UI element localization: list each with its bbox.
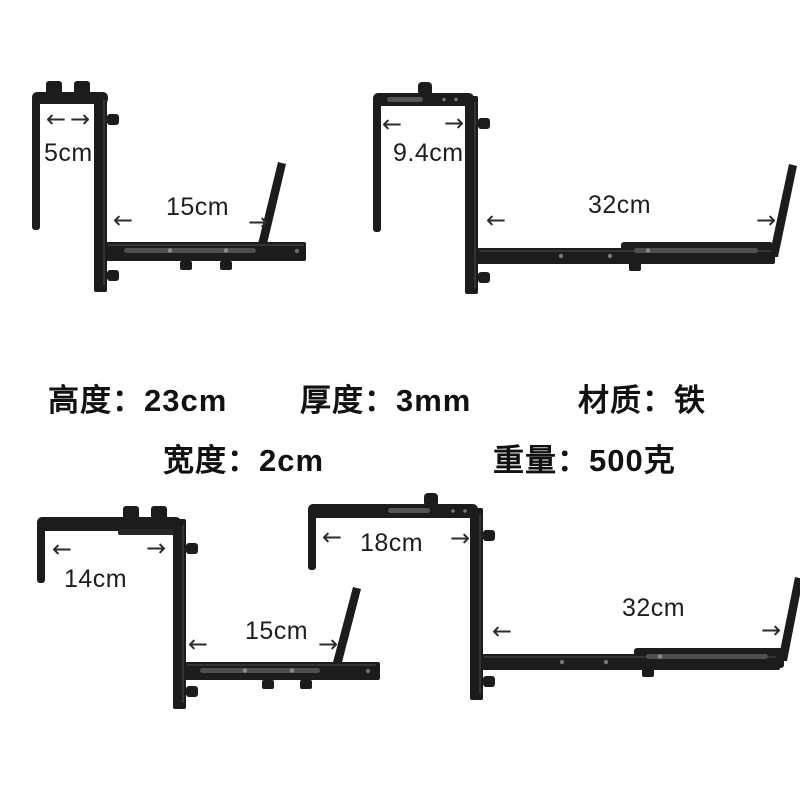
hook-left-leg — [32, 98, 40, 230]
arm-nub-icon — [262, 680, 274, 689]
screw-hole-icon — [604, 660, 608, 664]
bolt-icon — [424, 493, 438, 507]
clamp-knob-icon — [478, 272, 490, 283]
screw-icon — [168, 248, 172, 252]
clamp-knob-icon — [107, 114, 119, 125]
screw-hole-icon — [560, 660, 564, 664]
spec-material: 材质：铁 — [578, 383, 706, 419]
bracket-top-right-illustration — [365, 78, 800, 303]
spec-height: 高度：23cm — [48, 383, 227, 419]
arm-length-label: 15cm — [166, 194, 229, 222]
screw-icon — [243, 668, 247, 672]
spec-thickness: 厚度：3mm — [300, 383, 471, 419]
screw-icon — [451, 509, 455, 513]
mount-post — [465, 96, 478, 294]
bolt-icon — [418, 82, 432, 96]
arm-slot — [646, 654, 768, 659]
clamp-knob-icon — [186, 686, 198, 697]
hook-width-label: 18cm — [360, 530, 423, 558]
arm-nub-icon — [180, 261, 192, 270]
clamp-knob-icon — [186, 543, 198, 554]
mount-post — [173, 519, 186, 709]
arrow-left-icon: ← — [113, 208, 133, 232]
product-spec-image: ← → 5cm ← 15cm → ← → 9.4cm ← 32cm → 高 — [0, 0, 800, 800]
mount-post — [94, 94, 107, 292]
arm-length-label: 32cm — [622, 595, 685, 623]
arrow-right-icon: → — [444, 111, 464, 135]
arrow-left-icon: ← — [52, 537, 72, 561]
arrow-right-icon: → — [70, 107, 90, 131]
arrow-left-icon: ← — [322, 525, 342, 549]
arrow-left-icon: ← — [46, 107, 66, 131]
clamp-knob-icon — [478, 118, 490, 129]
screw-icon — [658, 654, 662, 658]
screw-icon — [646, 248, 650, 252]
arrow-right-icon: → — [756, 208, 776, 232]
bracket-bottom-right-illustration — [300, 488, 800, 708]
hook-left-leg — [308, 512, 316, 570]
hook-left-leg — [373, 100, 381, 232]
spec-weight: 重量：500克 — [493, 443, 676, 479]
clamp-knob-icon — [107, 270, 119, 281]
hook-left-leg — [37, 523, 45, 583]
arm-slot — [634, 248, 758, 253]
hook-width-label: 5cm — [44, 140, 93, 168]
hook-width-label: 9.4cm — [393, 140, 464, 168]
screw-hole-icon — [608, 254, 612, 258]
arm-nub-icon — [220, 261, 232, 270]
arrow-right-icon: → — [450, 526, 470, 550]
clamp-knob-icon — [483, 530, 495, 541]
arm-nub-icon — [642, 668, 654, 677]
screw-icon — [442, 98, 446, 102]
arrow-left-icon: ← — [188, 632, 208, 656]
arm-end-upright — [778, 577, 800, 661]
spec-width: 宽度：2cm — [163, 443, 324, 479]
screw-hole-icon — [559, 254, 563, 258]
screw-hole-icon — [295, 249, 299, 253]
bar-slot — [388, 508, 430, 513]
arrow-right-icon: → — [761, 618, 781, 642]
arrow-left-icon: ← — [492, 619, 512, 643]
screw-icon — [290, 668, 294, 672]
arm-length-label: 15cm — [245, 618, 308, 646]
clamp-knob-icon — [483, 676, 495, 687]
arm-nub-icon — [629, 262, 641, 271]
arrow-left-icon: ← — [486, 208, 506, 232]
hook-width-label: 14cm — [64, 566, 127, 594]
hook-top-bar — [37, 517, 181, 531]
mount-post — [470, 508, 483, 700]
bar-slot — [387, 97, 423, 102]
arrow-left-icon: ← — [382, 112, 402, 136]
screw-icon — [463, 509, 467, 513]
arm-length-label: 32cm — [588, 192, 651, 220]
arrow-right-icon: → — [146, 536, 166, 560]
screw-icon — [454, 98, 458, 102]
arrow-right-icon: → — [248, 210, 268, 234]
arm-slot — [124, 248, 256, 253]
screw-icon — [224, 248, 228, 252]
